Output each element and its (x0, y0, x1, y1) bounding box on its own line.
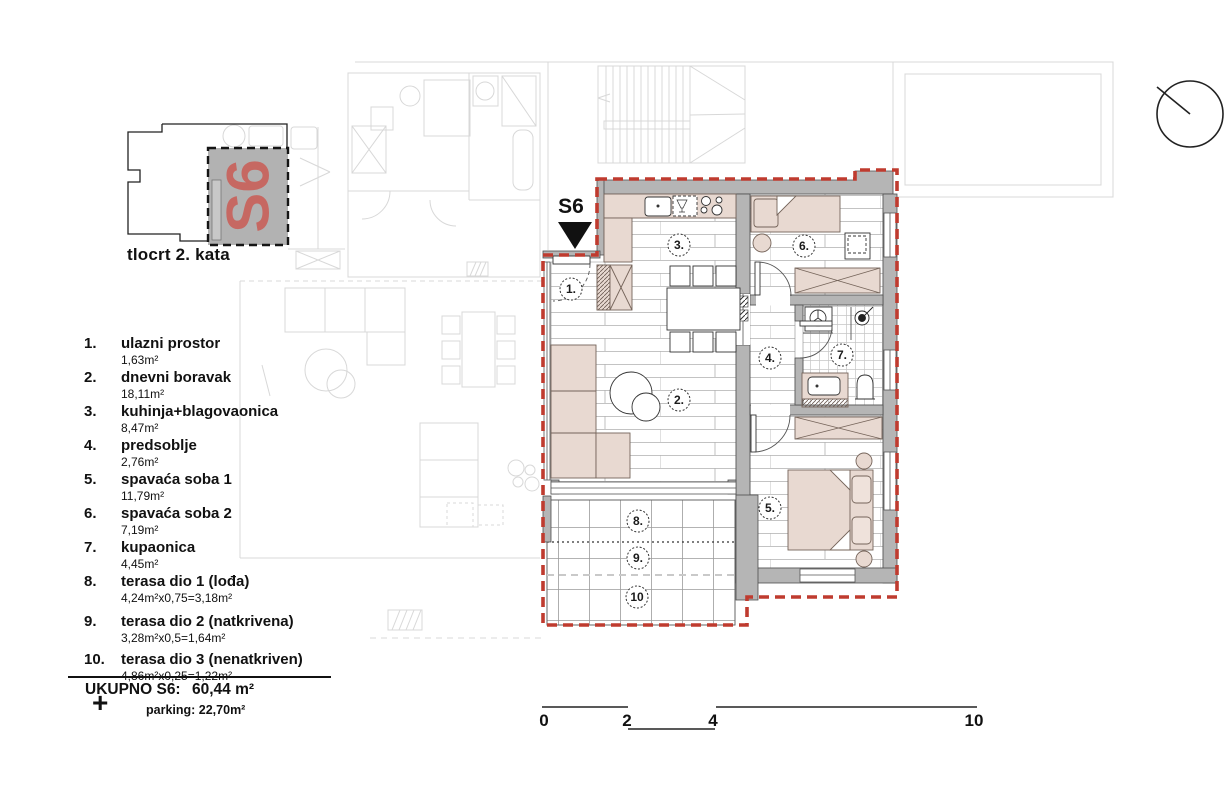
legend-item: 5.spavaća soba 111,79m² (84, 471, 384, 503)
side-table (856, 453, 872, 469)
unit-marker: S6 (558, 195, 592, 249)
legend-number: 5. (84, 472, 121, 488)
legend-room-name: predsoblje (121, 437, 197, 454)
svg-text:10: 10 (630, 590, 644, 604)
legend-number: 1. (84, 336, 121, 352)
entry-wardrobe (597, 265, 632, 310)
key-plan-caption: tlocrt 2. kata (127, 245, 230, 265)
legend-room-name: kupaonica (121, 539, 195, 556)
legend-room-name: kuhinja+blagovaonica (121, 403, 278, 420)
room-badge-2: 2. (668, 389, 690, 411)
svg-text:5.: 5. (765, 501, 775, 515)
legend-item: 6.spavaća soba 27,19m² (84, 505, 384, 537)
dining-table (667, 266, 740, 352)
legend-number: 6. (84, 506, 121, 522)
legend-room-area: 18,11m² (121, 387, 384, 401)
svg-text:1.: 1. (566, 282, 576, 296)
toilet (857, 375, 873, 399)
room-badge-5: 5. (759, 497, 781, 519)
svg-text:4.: 4. (765, 351, 775, 365)
unit-marker-label: S6 (558, 195, 584, 218)
legend-room-name: terasa dio 1 (lođa) (121, 573, 249, 590)
svg-text:4: 4 (708, 711, 718, 730)
legend-item: 8.terasa dio 1 (lođa)4,24m²x0,75=3,18m² (84, 573, 384, 605)
room-badge-10: 10 (626, 586, 648, 608)
parking-value: parking: 22,70m² (146, 703, 245, 717)
legend-number: 8. (84, 574, 121, 590)
room-badge-4: 4. (759, 347, 781, 369)
svg-text:7.: 7. (837, 348, 847, 362)
legend-item: 9.terasa dio 2 (natkrivena)3,28m²x0,5=1,… (84, 613, 384, 645)
bed-double (788, 470, 873, 550)
legend-room-name: terasa dio 3 (nenatkriven) (121, 651, 303, 668)
legend-number: 2. (84, 370, 121, 386)
legend-room-name: spavaća soba 1 (121, 471, 232, 488)
legend-item: 4.predsoblje2,76m² (84, 437, 384, 469)
room-badge-9: 9. (627, 547, 649, 569)
legend-number: 10. (84, 652, 121, 668)
coffee-table (632, 393, 660, 421)
legend-room-name: spavaća soba 2 (121, 505, 232, 522)
bathroom-vanity (802, 373, 848, 407)
legend-room-area: 3,28m²x0,5=1,64m² (121, 631, 384, 645)
legend-room-name: dnevni boravak (121, 369, 231, 386)
legend-number: 9. (84, 614, 121, 630)
legend-room-area: 8,47m² (121, 421, 384, 435)
svg-text:2: 2 (622, 711, 631, 730)
legend-item: 1.ulazni prostor1,63m² (84, 335, 384, 367)
svg-text:10: 10 (965, 711, 984, 730)
legend-item: 10.terasa dio 3 (nenatkriven)4,86m²x0,25… (84, 651, 384, 683)
key-plan-unit-label: S6 (215, 159, 282, 232)
sink-icon (657, 205, 660, 208)
legend-number: 7. (84, 540, 121, 556)
room-badge-6: 6. (793, 235, 815, 257)
plus-sign: + (92, 690, 108, 716)
bed-single (751, 196, 840, 232)
legend-room-name: terasa dio 2 (natkrivena) (121, 613, 294, 630)
unit-marker-arrow-icon (558, 222, 592, 249)
room-badge-1: 1. (560, 278, 582, 300)
total-value: 60,44 m² (192, 681, 254, 699)
legend-item: 7.kupaonica4,45m² (84, 539, 384, 571)
legend-room-area: 4,45m² (121, 557, 384, 571)
room-badge-7: 7. (831, 344, 853, 366)
legend-room-area: 1,63m² (121, 353, 384, 367)
wardrobe-bedroom1 (795, 417, 882, 439)
svg-text:3.: 3. (674, 238, 684, 252)
svg-text:0: 0 (539, 711, 548, 730)
legend-item: 3.kuhinja+blagovaonica8,47m² (84, 403, 384, 435)
legend-room-area: 4,24m²x0,75=3,18m² (121, 591, 384, 605)
summary-divider (68, 676, 331, 678)
legend-number: 4. (84, 438, 121, 454)
legend-room-area: 7,19m² (121, 523, 384, 537)
washing-machine (805, 307, 832, 331)
legend-item: 2.dnevni boravak18,11m² (84, 369, 384, 401)
scale-bar-labels: 0 2 4 10 (539, 711, 983, 730)
svg-text:9.: 9. (633, 551, 643, 565)
side-table (856, 551, 872, 567)
svg-text:8.: 8. (633, 514, 643, 528)
legend-room-name: ulazni prostor (121, 335, 220, 352)
legend-room-area: 2,76m² (121, 455, 384, 469)
wardrobe-bedroom2 (795, 268, 880, 293)
north-indicator-icon (1157, 81, 1223, 147)
stool (753, 234, 771, 252)
room-badge-8: 8. (627, 510, 649, 532)
room-legend: 1.ulazni prostor1,63m² 2.dnevni boravak1… (84, 335, 384, 685)
legend-room-area: 11,79m² (121, 489, 384, 503)
svg-text:6.: 6. (799, 239, 809, 253)
svg-text:2.: 2. (674, 393, 684, 407)
room-badge-3: 3. (668, 234, 690, 256)
scale-bar (542, 707, 977, 729)
legend-number: 3. (84, 404, 121, 420)
